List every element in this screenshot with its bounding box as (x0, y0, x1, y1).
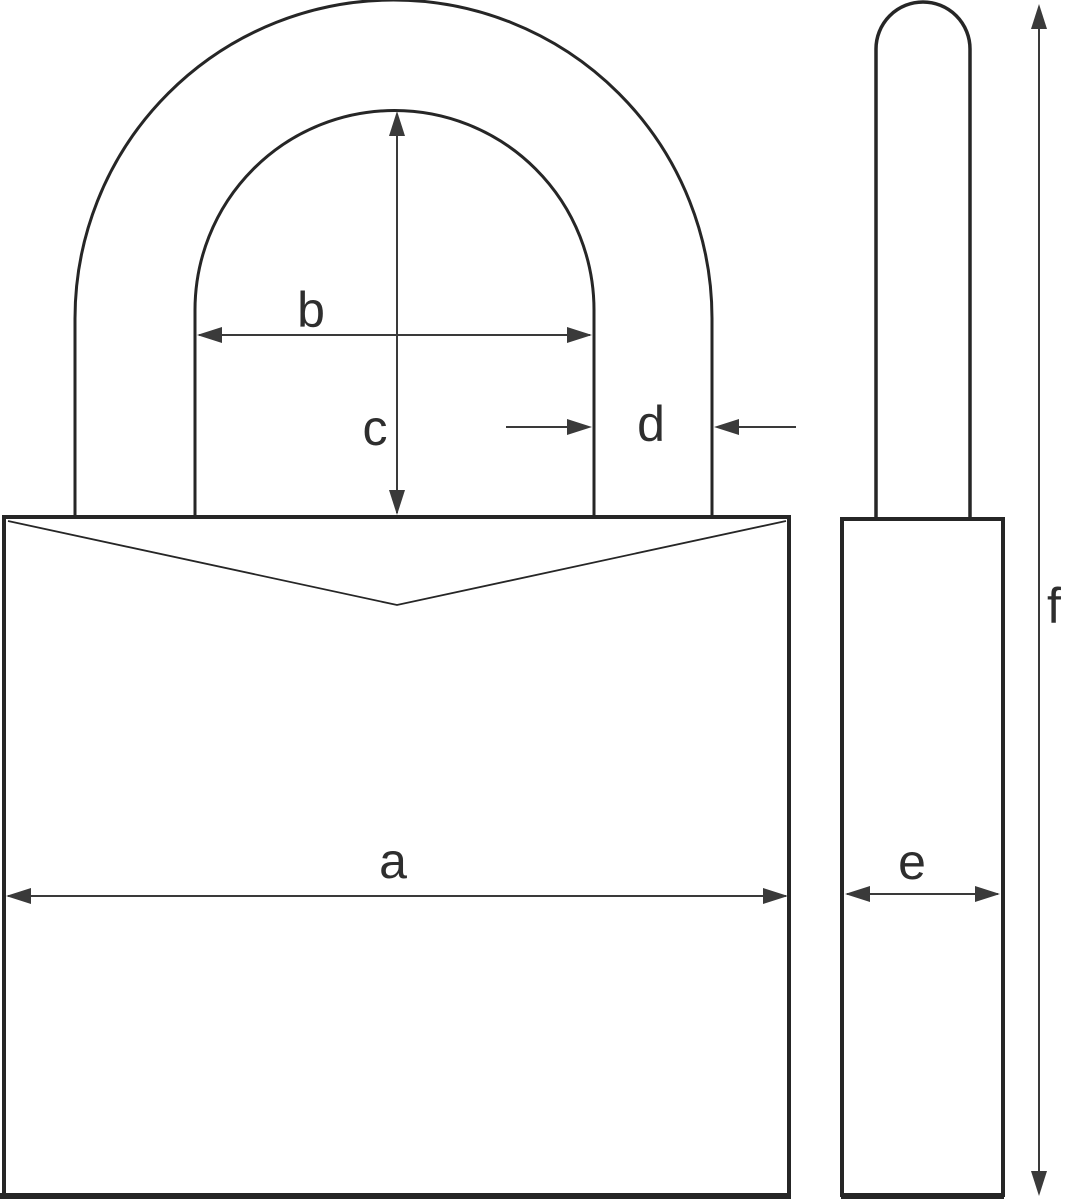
front-shackle-inner-edge (195, 111, 594, 518)
dim-d-arrow-right-icon (567, 419, 592, 435)
dimension-a (6, 888, 788, 904)
dim-label-c: c (363, 400, 388, 456)
dim-a-arrow-right-icon (763, 888, 788, 904)
dim-f-arrow-up-icon (1031, 4, 1047, 29)
dim-d-arrow-left-icon (714, 419, 739, 435)
dim-f-arrow-down-icon (1031, 1171, 1047, 1196)
dim-label-b: b (297, 282, 325, 338)
dim-label-e: e (898, 834, 926, 890)
dim-a-arrow-left-icon (6, 888, 31, 904)
front-shackle-outer-edge (75, 0, 712, 517)
front-view (0, 0, 791, 1196)
dim-b-arrow-left-icon (197, 327, 222, 343)
dimension-f (1031, 4, 1047, 1196)
front-body-notch (8, 521, 786, 605)
dimension-c (389, 111, 405, 515)
dimension-labels: a b c d e f (297, 282, 1061, 890)
side-view (841, 2, 1004, 1196)
dim-label-f: f (1047, 578, 1061, 634)
side-shackle-outline (876, 2, 970, 519)
dimension-b (197, 327, 592, 343)
dim-e-arrow-left-icon (845, 886, 870, 902)
dim-e-arrow-right-icon (975, 886, 1000, 902)
dim-label-d: d (637, 396, 665, 452)
dim-label-a: a (379, 833, 407, 889)
diagram-canvas: a b c d e f (0, 0, 1066, 1200)
dim-c-arrow-down-icon (389, 490, 405, 515)
dim-b-arrow-right-icon (567, 327, 592, 343)
padlock-dimension-diagram: a b c d e f (0, 0, 1066, 1200)
dim-c-arrow-up-icon (389, 111, 405, 136)
